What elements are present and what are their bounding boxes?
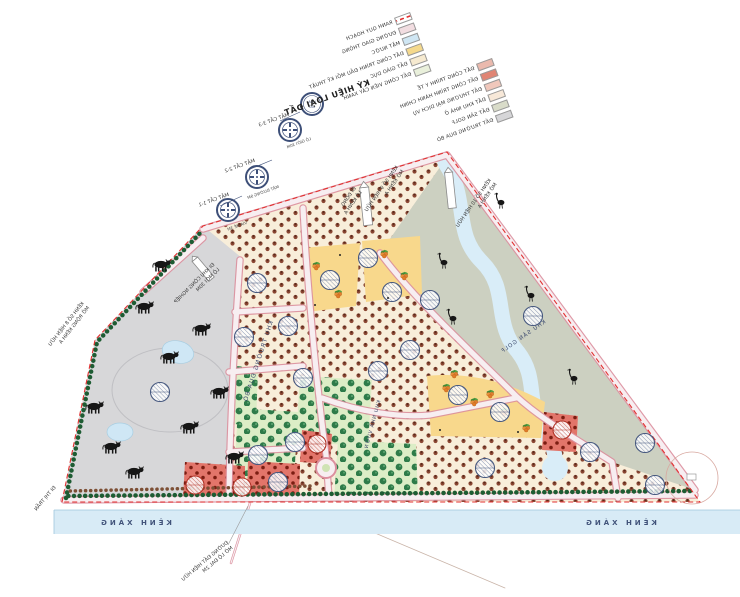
parcel-survey-circle — [449, 386, 468, 405]
parcel-survey-circle — [321, 271, 340, 290]
parcel-survey-circle — [279, 317, 298, 336]
section-circle-1 — [279, 119, 301, 141]
survey-dot — [339, 254, 341, 256]
parcel-survey-circle-red — [553, 421, 571, 439]
parcel-survey-circle — [383, 283, 402, 302]
parcel-survey-circle — [235, 328, 254, 347]
golf-stream-pool — [542, 455, 568, 481]
parcel-survey-circle — [581, 443, 600, 462]
parcel-survey-circle — [249, 446, 268, 465]
parcel-survey-circle-red — [308, 435, 326, 453]
parcel-survey-circle-red — [233, 478, 251, 496]
parcel-survey-circle — [151, 383, 170, 402]
parcel-survey-circle — [421, 291, 440, 310]
parcel-survey-circle — [636, 434, 655, 453]
parcel-survey-circle — [491, 403, 510, 422]
parcel-survey-circle — [294, 369, 313, 388]
parcel-survey-circle — [646, 476, 665, 495]
ostrich-icon — [494, 193, 504, 209]
parcel-survey-circle — [524, 307, 543, 326]
parcel-survey-circle — [476, 459, 495, 478]
survey-dot — [314, 304, 316, 306]
roundabout-center — [322, 464, 330, 472]
survey-dot — [387, 297, 389, 299]
parcel-survey-circle — [369, 362, 388, 381]
mirrored-master-plan-scene: HOA GIÓ KHU TRƯỜNG ĐUA BÒ KHU SÂN GOLF K… — [0, 0, 740, 597]
survey-dot — [517, 431, 519, 433]
parcel-survey-circle — [248, 274, 267, 293]
parcel-survey-circle — [269, 473, 288, 492]
canal-label-east: KÊNH XÁNG — [583, 518, 657, 527]
parcel-survey-circle — [359, 249, 378, 268]
corner-structure — [687, 474, 696, 480]
canal-label-west: KÊNH XÁNG — [98, 518, 172, 527]
parcel-survey-circle-red — [186, 476, 204, 494]
parcel-survey-circle — [286, 433, 305, 452]
pasture-pond-2 — [107, 423, 133, 441]
survey-dot — [439, 429, 441, 431]
parcel-survey-circle — [401, 341, 420, 360]
